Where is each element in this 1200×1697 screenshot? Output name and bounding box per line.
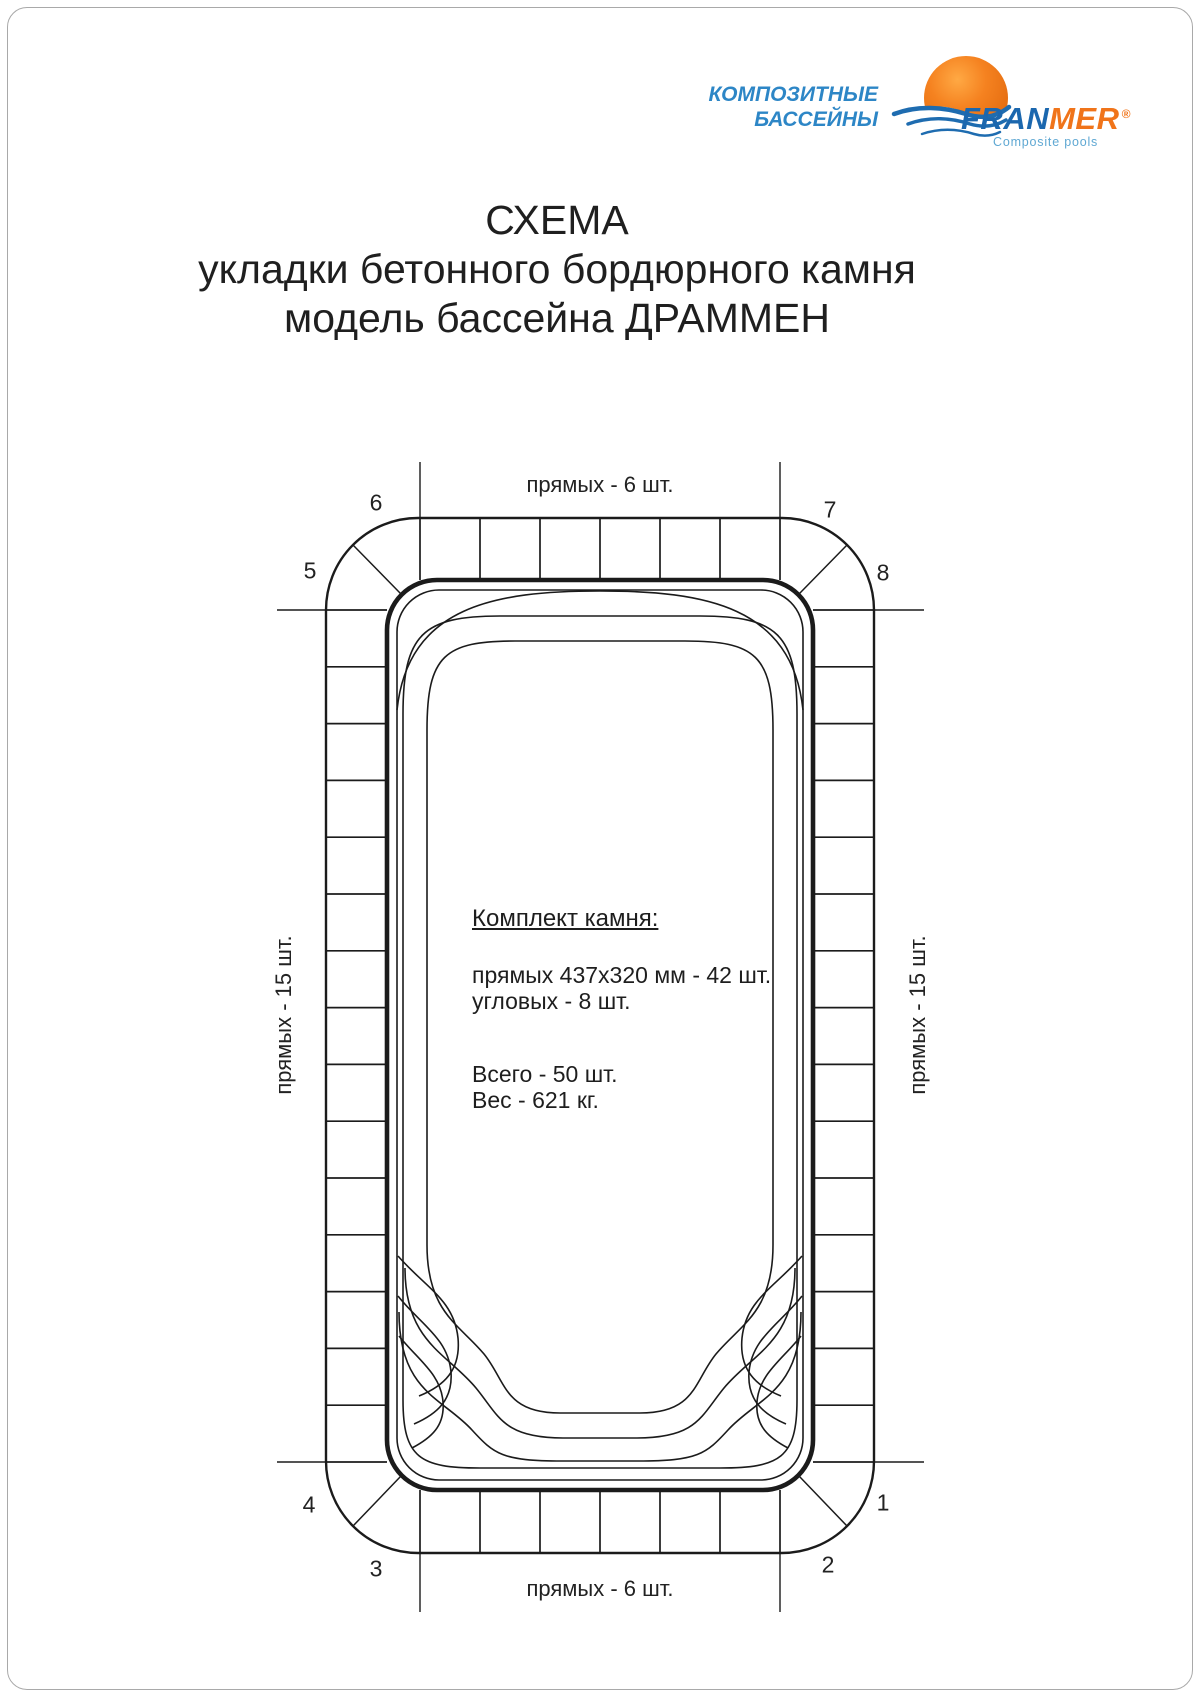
- top-side-count-label: прямых - 6 шт.: [526, 472, 673, 498]
- corner-diagonal-bottom-right: [798, 1475, 847, 1526]
- left-side-count-label: прямых - 15 шт.: [271, 935, 297, 1094]
- corner-number-6: 6: [370, 490, 383, 517]
- stone-kit-spec: Комплект камня: прямых 437х320 мм - 42 ш…: [472, 906, 771, 1113]
- spec-heading: Комплект камня:: [472, 906, 771, 932]
- pool-border-stone-diagram: [0, 0, 1200, 1697]
- corner-diagonal-bottom-left: [353, 1475, 402, 1526]
- corner-number-1: 1: [877, 1490, 890, 1517]
- step-scallops-right: [742, 1256, 802, 1448]
- corner-number-4: 4: [303, 1492, 316, 1519]
- spec-weight-line: Вес - 621 кг.: [472, 1087, 771, 1113]
- scallop-left-1: [398, 1256, 458, 1396]
- corner-number-7: 7: [824, 497, 837, 524]
- scallop-right-1: [742, 1256, 802, 1396]
- corner-number-8: 8: [877, 560, 890, 587]
- spec-corner-line: угловых - 8 шт.: [472, 988, 771, 1014]
- spec-total-line: Всего - 50 шт.: [472, 1061, 771, 1087]
- corner-number-3: 3: [370, 1556, 383, 1583]
- corner-diagonal-top-right: [798, 545, 847, 595]
- corner-diagonal-top-left: [353, 545, 402, 595]
- right-side-count-label: прямых - 15 шт.: [905, 935, 931, 1094]
- bottom-side-count-label: прямых - 6 шт.: [526, 1576, 673, 1602]
- corner-number-2: 2: [822, 1552, 835, 1579]
- spec-straight-line: прямых 437х320 мм - 42 шт.: [472, 962, 771, 988]
- step-scallops-left: [398, 1256, 458, 1448]
- pool-top-sweep-arc: [397, 591, 803, 710]
- corner-number-5: 5: [304, 558, 317, 585]
